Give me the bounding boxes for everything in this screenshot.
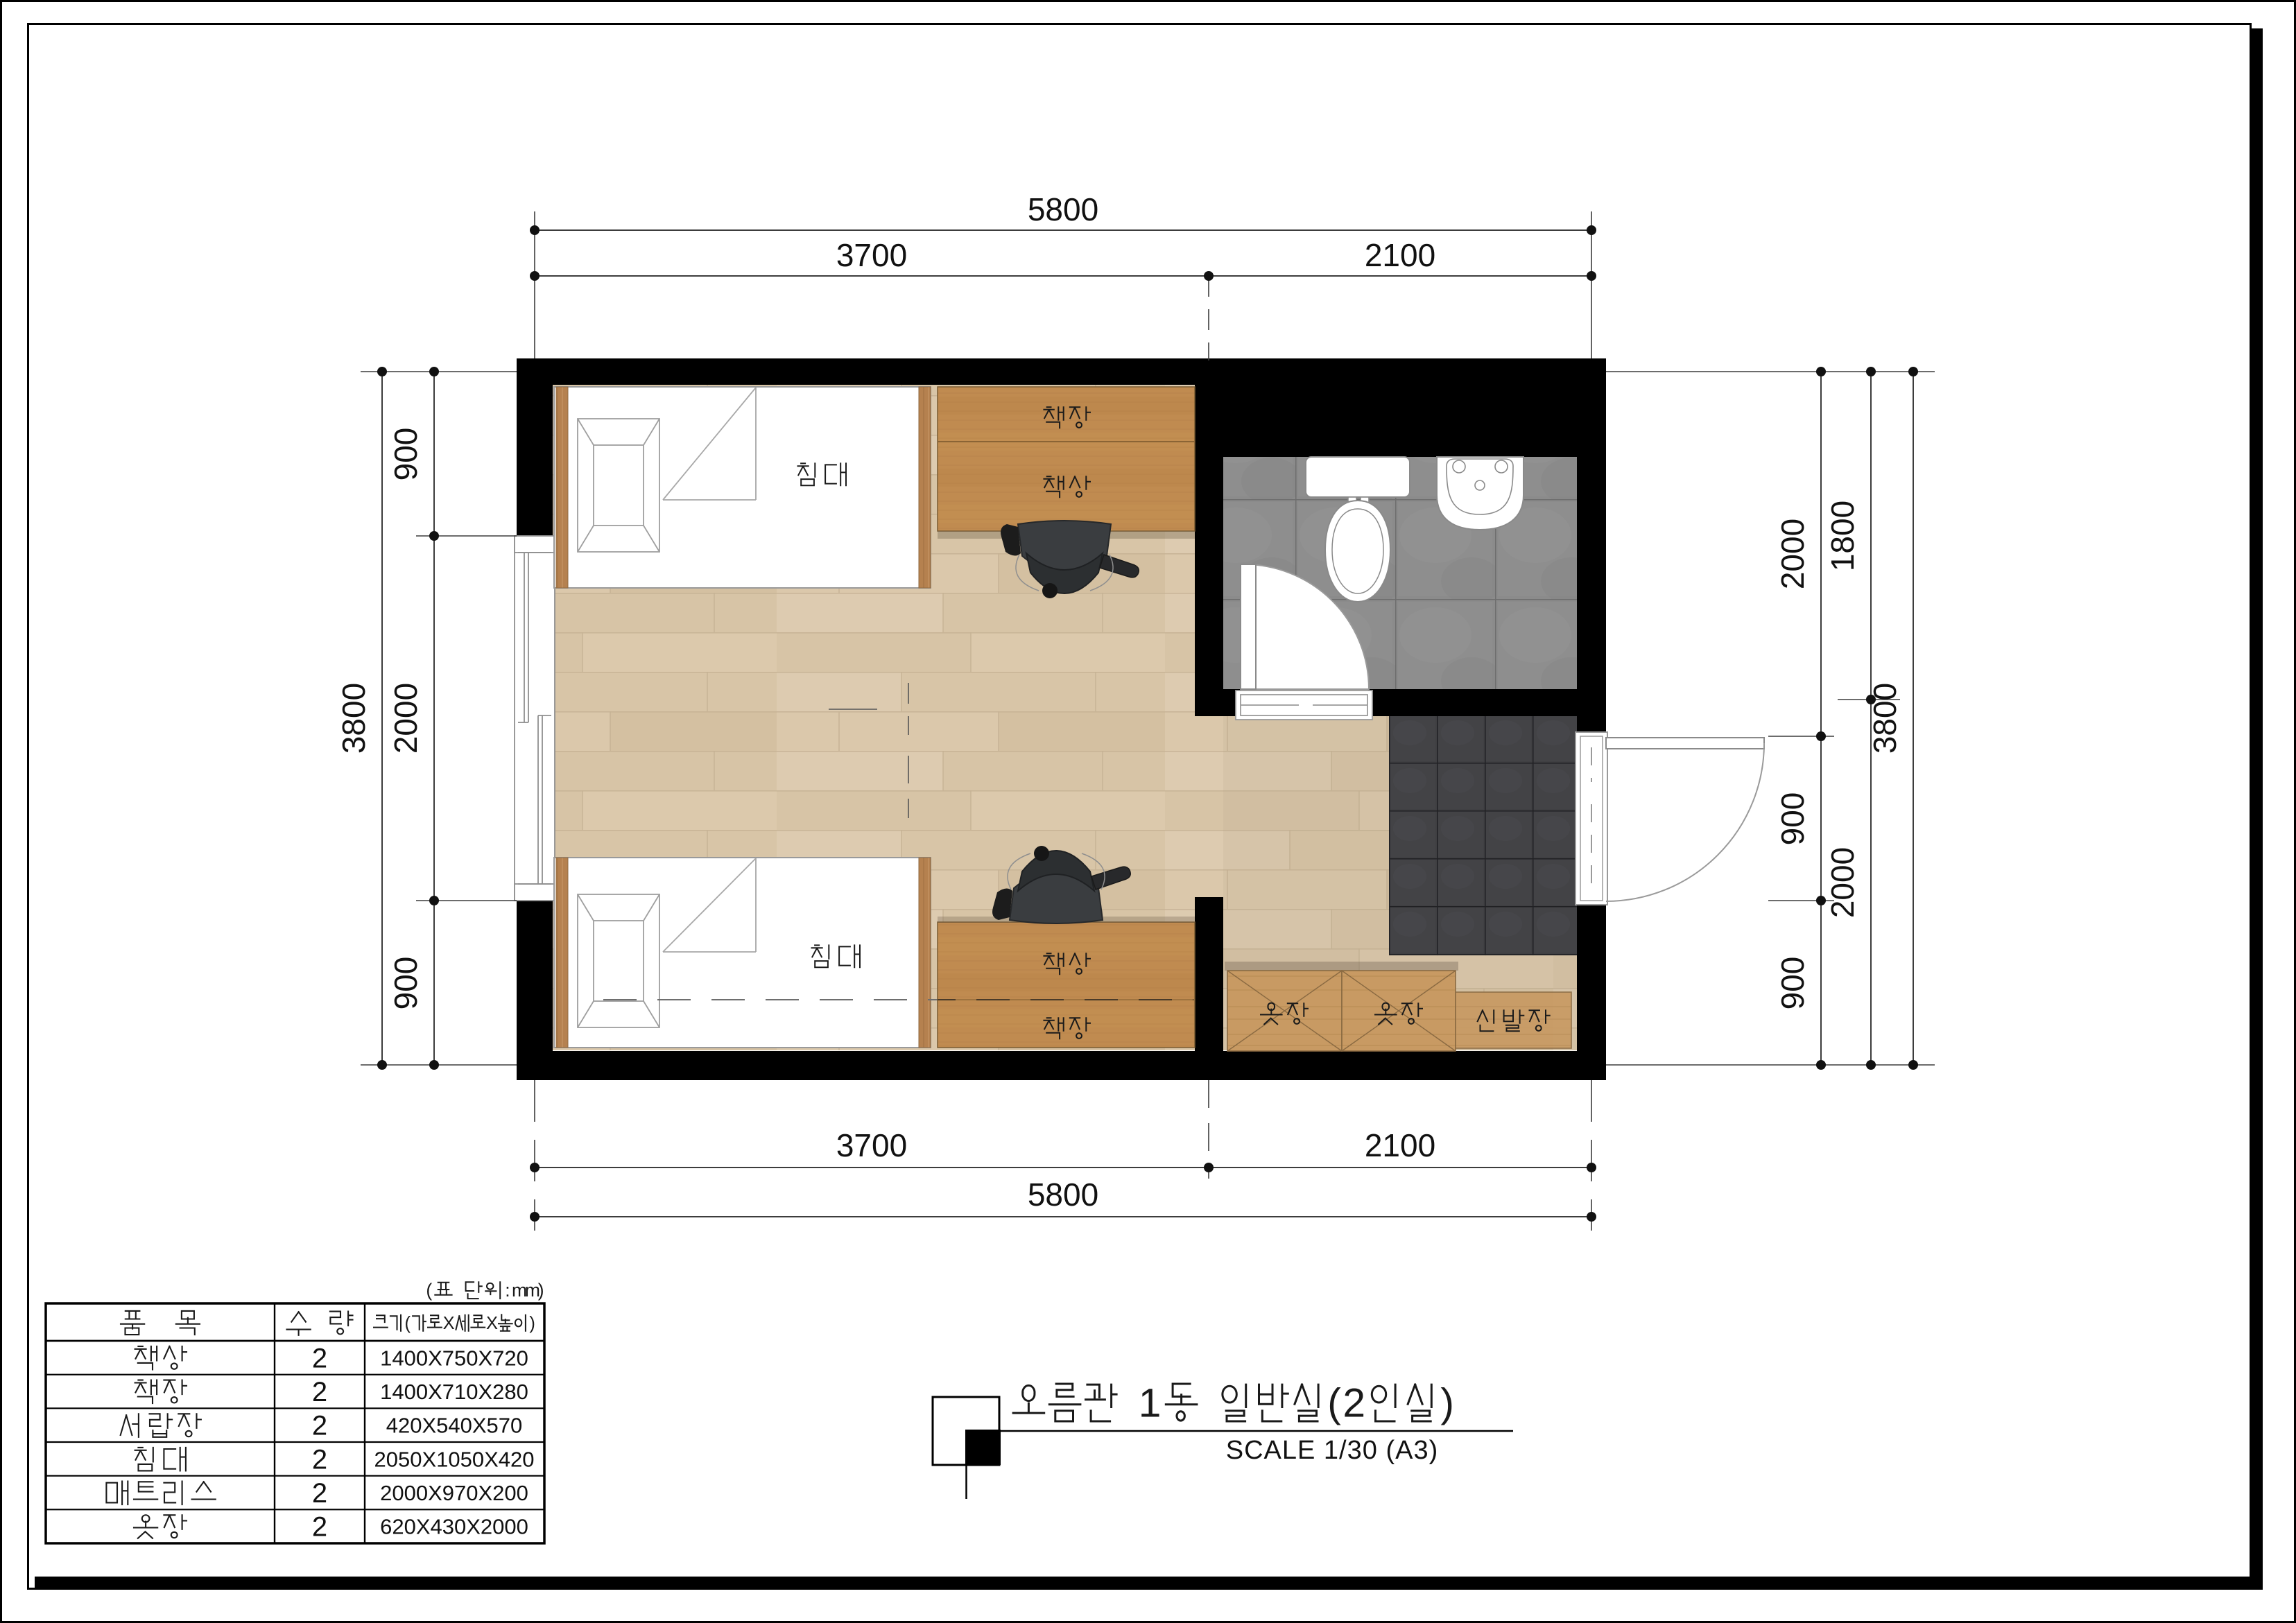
svg-text:(: ( [1327, 1380, 1341, 1425]
svg-text:(: ( [405, 1314, 411, 1333]
svg-text:X: X [443, 1314, 455, 1333]
svg-text:2050X1050X420: 2050X1050X420 [374, 1447, 534, 1471]
svg-text:2100: 2100 [1365, 237, 1435, 273]
svg-text:X: X [486, 1314, 498, 1333]
svg-text:2: 2 [312, 1512, 327, 1543]
svg-text:2000: 2000 [388, 683, 424, 754]
svg-text:2: 2 [312, 1444, 327, 1475]
svg-text:3700: 3700 [836, 1127, 907, 1163]
svg-text:2000: 2000 [1824, 847, 1861, 918]
svg-text:5800: 5800 [1028, 1177, 1098, 1213]
svg-text:(: ( [426, 1280, 432, 1301]
svg-text:900: 900 [388, 428, 424, 481]
svg-text:1: 1 [1139, 1380, 1162, 1425]
svg-text:3800: 3800 [1867, 683, 1903, 754]
svg-text:5800: 5800 [1028, 191, 1098, 227]
svg-text:): ) [1440, 1380, 1454, 1425]
svg-text:1400X750X720: 1400X750X720 [380, 1346, 528, 1370]
svg-text:3800: 3800 [336, 683, 372, 754]
svg-text:2000: 2000 [1775, 519, 1811, 589]
svg-text:2: 2 [312, 1343, 327, 1373]
svg-text::: : [505, 1280, 510, 1301]
svg-text:420X540X570: 420X540X570 [386, 1414, 523, 1438]
svg-text:2: 2 [312, 1377, 327, 1407]
svg-text:): ) [529, 1314, 535, 1333]
svg-text:3700: 3700 [836, 237, 907, 273]
svg-text:900: 900 [388, 957, 424, 1010]
svg-text:1800: 1800 [1824, 501, 1861, 571]
svg-text:2: 2 [312, 1478, 327, 1509]
svg-text:900: 900 [1775, 792, 1811, 846]
svg-text:1400X710X280: 1400X710X280 [380, 1380, 528, 1404]
svg-text:900: 900 [1775, 957, 1811, 1010]
svg-text:SCALE 1/30 (A3): SCALE 1/30 (A3) [1226, 1436, 1438, 1465]
svg-text:2100: 2100 [1365, 1127, 1435, 1163]
svg-text:2000X970X200: 2000X970X200 [380, 1481, 528, 1505]
svg-text:620X430X2000: 620X430X2000 [380, 1515, 528, 1539]
svg-text:2: 2 [1343, 1380, 1365, 1425]
svg-text:): ) [538, 1280, 544, 1301]
svg-text:2: 2 [312, 1411, 327, 1441]
